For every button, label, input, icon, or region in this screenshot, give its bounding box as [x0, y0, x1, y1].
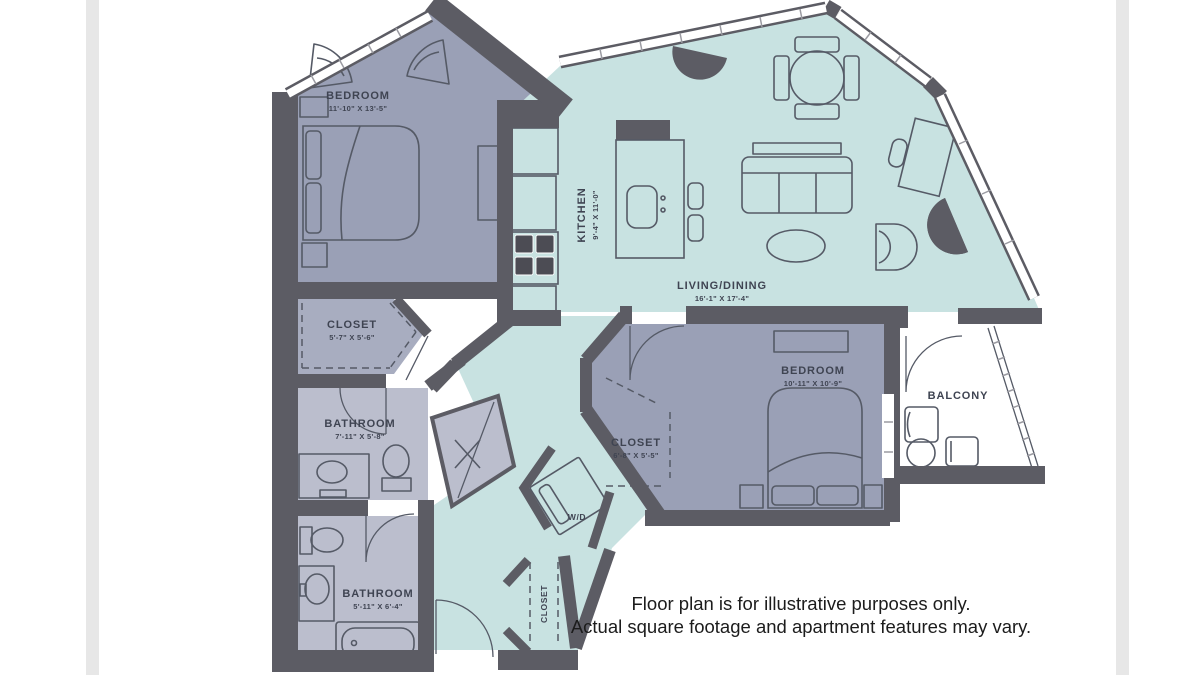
floor-plan-page: BEDROOM 11'-10" X 13'-5" CLOSET 5'-7" X … [0, 0, 1200, 675]
bathroom-2-dims: 5'-11" X 6'-4" [353, 602, 403, 611]
closet-2-dims: 6'-8" X 5'-5" [613, 451, 659, 460]
bathroom-1-floor [297, 388, 428, 500]
kitchen-label: KITCHEN [576, 187, 588, 242]
kitchen-dims: 9'-4" X 11'-0" [591, 190, 600, 240]
disclaimer: Floor plan is for illustrative purposes … [571, 593, 1031, 637]
living-dining-label: LIVING/DINING [677, 280, 767, 292]
counter-icon [512, 286, 556, 312]
washer-dryer-label: W/D [568, 512, 586, 522]
bedroom-2-dims: 10'-11" X 10'-9" [784, 379, 843, 388]
bathroom-1-dims: 7'-11" X 5'-8" [335, 432, 385, 441]
room-floors [287, 12, 1040, 650]
bathroom-2-floor [297, 516, 420, 650]
closet-3-label: CLOSET [539, 585, 549, 623]
balcony-label: BALCONY [928, 390, 989, 402]
bedroom-2-window [882, 394, 894, 478]
bedroom-2-label: BEDROOM [781, 365, 845, 377]
right-edge-bar [1116, 0, 1129, 675]
counter-icon [512, 176, 556, 230]
range-hood-icon [616, 120, 670, 140]
queen-bed-icon [768, 388, 862, 508]
closet-1-label: CLOSET [327, 319, 377, 331]
disclaimer-line-2: Actual square footage and apartment feat… [571, 616, 1031, 637]
left-edge-bar [86, 0, 99, 675]
closet-2-label: CLOSET [611, 437, 661, 449]
closet-1-dims: 5'-7" X 5'-6" [329, 333, 375, 342]
bathroom-1-label: BATHROOM [324, 418, 395, 430]
living-dining-dims: 16'-1" X 17'-4" [695, 294, 750, 303]
bathroom-2-label: BATHROOM [342, 588, 413, 600]
bedroom-1-label: BEDROOM [326, 90, 390, 102]
floor-plan-figure: BEDROOM 11'-10" X 13'-5" CLOSET 5'-7" X … [0, 0, 1200, 675]
bedroom-1-dims: 11'-10" X 13'-5" [329, 104, 388, 113]
fridge-icon [512, 128, 558, 174]
disclaimer-line-1: Floor plan is for illustrative purposes … [632, 593, 971, 614]
